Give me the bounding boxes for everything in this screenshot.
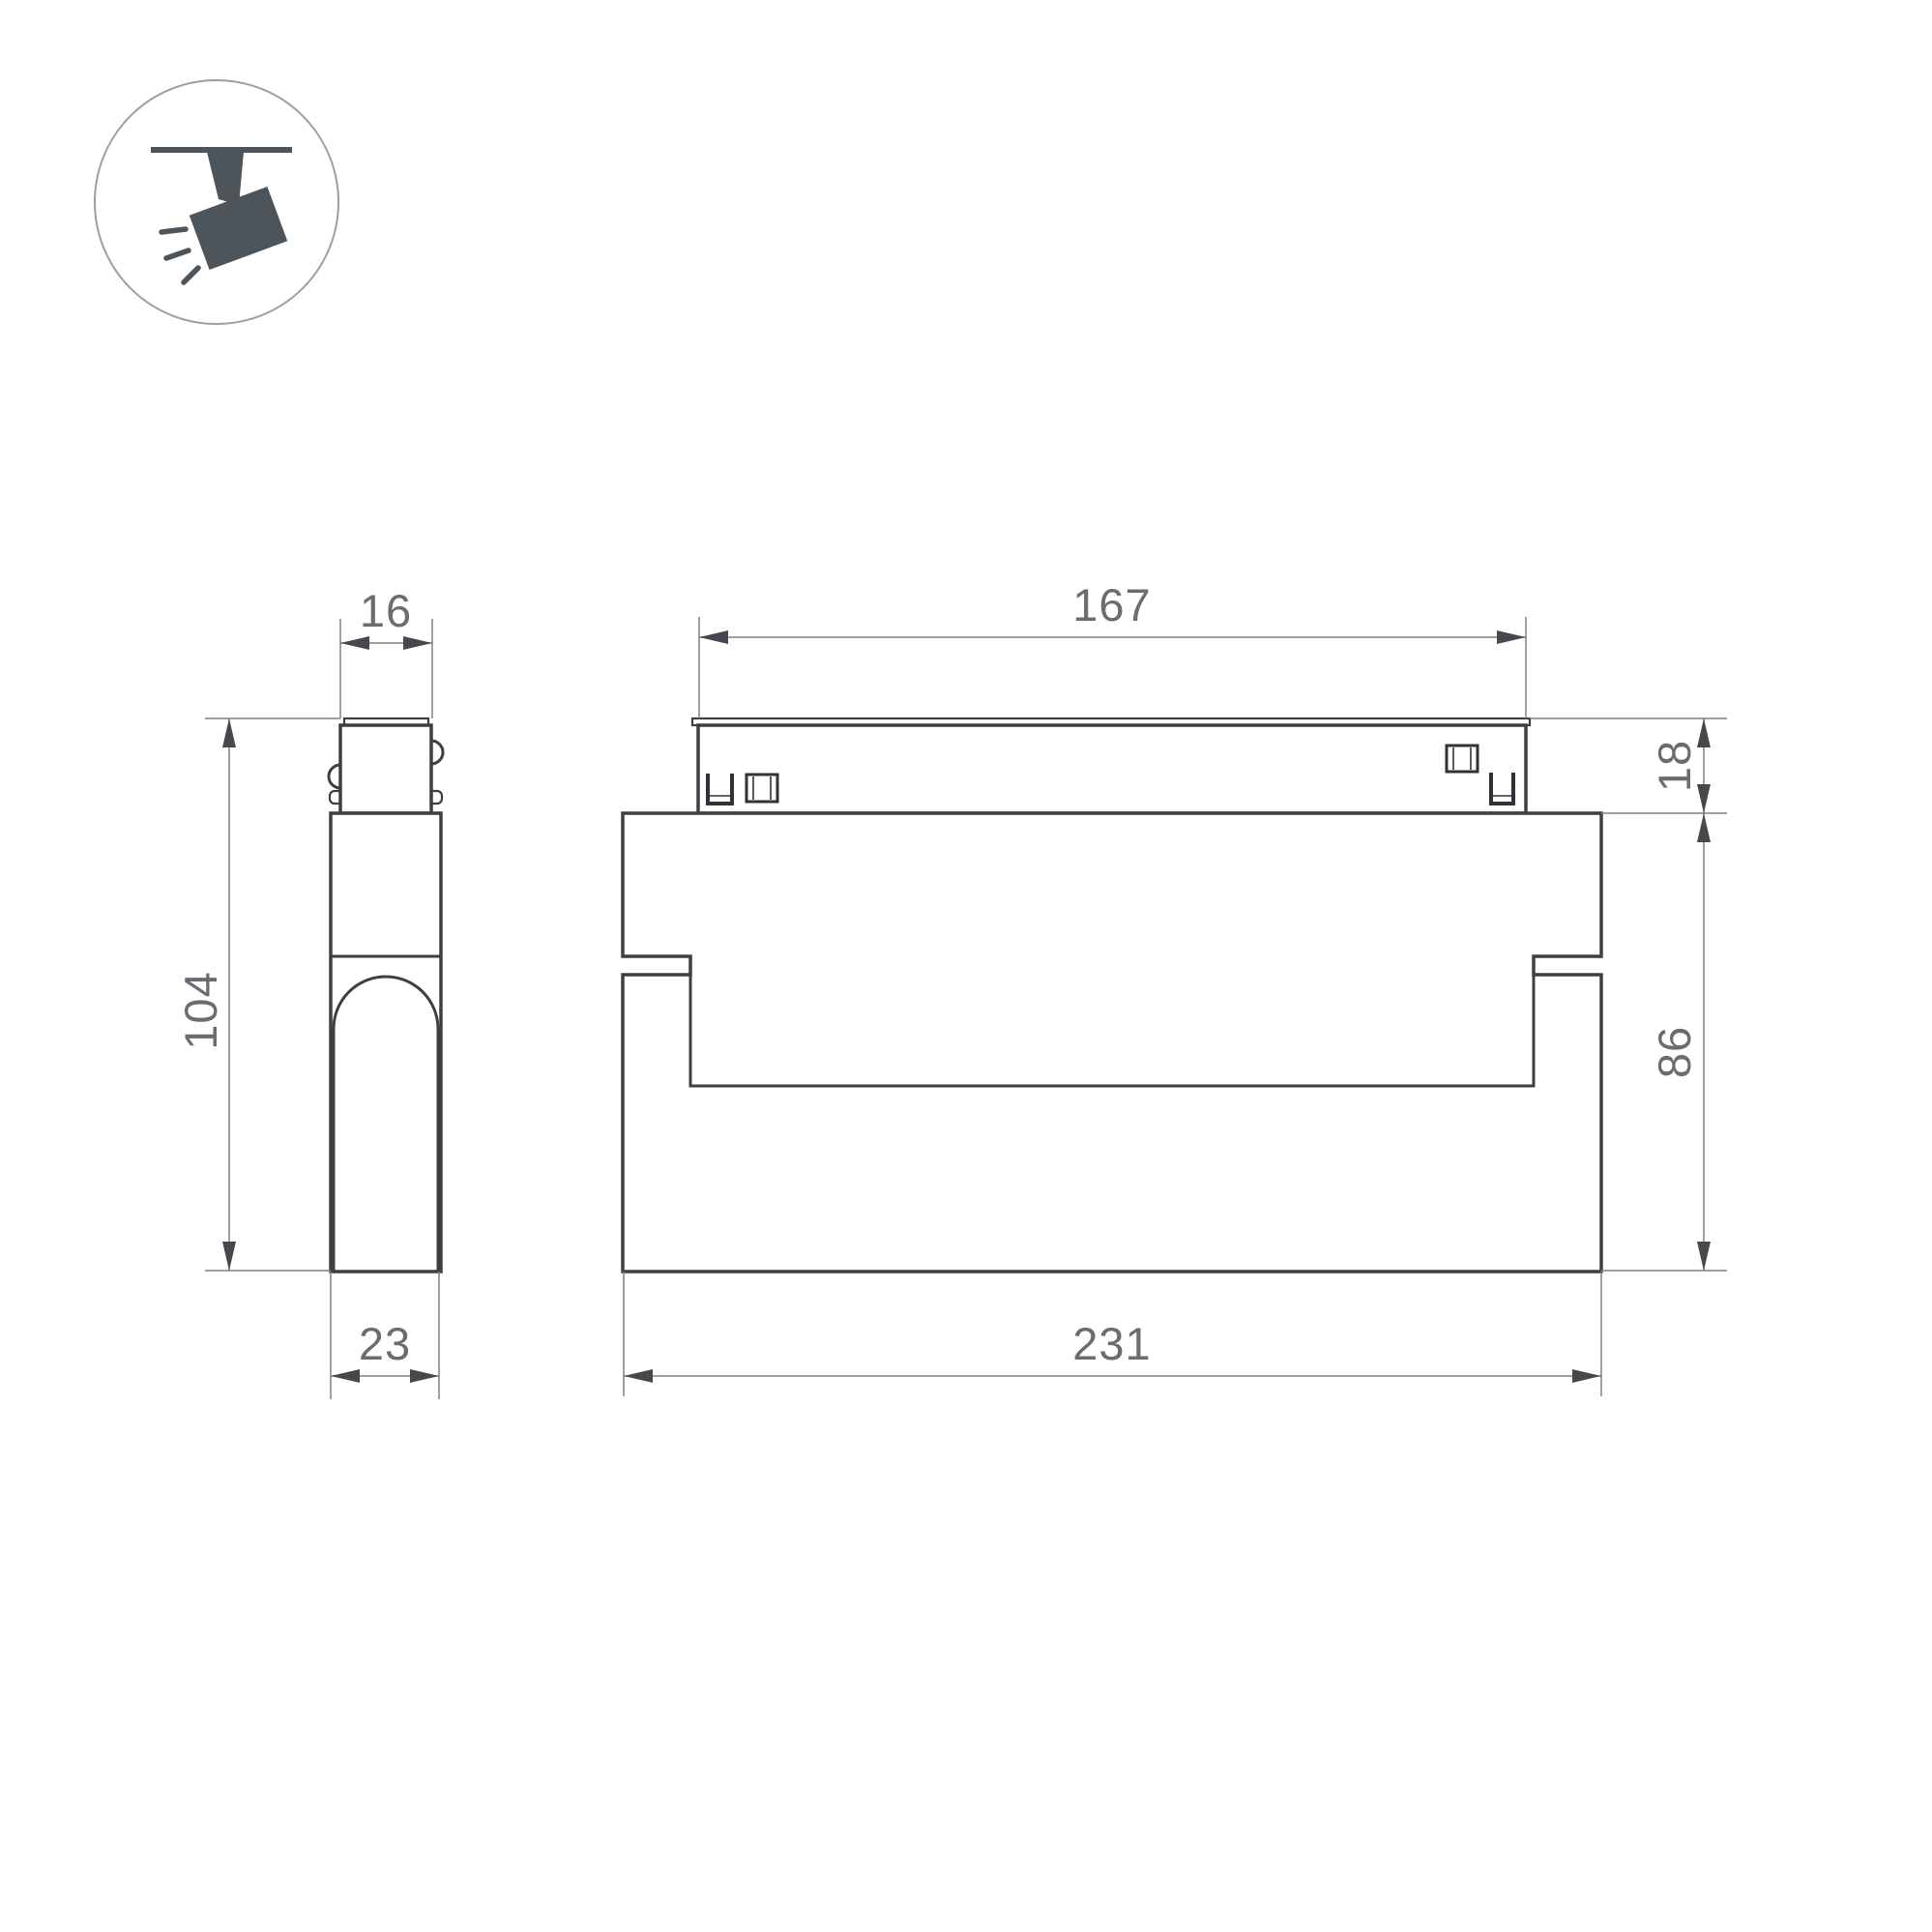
arrowhead [1697,1242,1711,1271]
dim-label-86: 86 [1649,1026,1700,1078]
arrowhead [340,636,369,650]
dim-label-104: 104 [175,971,226,1049]
side-body [331,813,441,1272]
dim-label-16: 16 [360,585,412,636]
dim-label-231: 231 [1072,1318,1151,1369]
icon-circle [95,80,338,324]
drawing-canvas: 16 104 23 [0,0,1932,1932]
track-spotlight-icon [95,80,338,324]
front-view [623,718,1601,1272]
front-adapter-strip [698,725,1526,813]
dim-front-body-height: 86 [1601,813,1727,1271]
arrowhead [1697,813,1711,842]
arrowhead [410,1369,439,1383]
dim-front-adapter-height: 18 [1530,718,1727,813]
arrowhead [1572,1369,1601,1383]
dim-side-adapter-width: 16 [340,585,432,718]
icon-light-ray [161,229,186,232]
dim-side-total-height: 104 [175,718,340,1271]
dim-label-23: 23 [359,1318,411,1369]
side-adapter [340,725,431,813]
arrowhead [331,1369,360,1383]
dimension-drawing: 16 104 23 [0,0,1932,1932]
arrowhead [699,630,728,644]
arrowhead [222,718,236,747]
dim-front-adapter-length: 167 [699,579,1526,718]
arrowhead [624,1369,653,1383]
arrowhead [403,636,432,650]
dim-label-18: 18 [1649,740,1700,792]
arrowhead [222,1242,236,1271]
arrowhead [1497,630,1526,644]
side-right-clip-bump [431,741,443,764]
side-left-clip-bump [329,765,340,788]
dim-front-body-length: 231 [624,1272,1601,1396]
side-view [329,718,443,1272]
dim-side-body-depth: 23 [331,1272,439,1399]
dim-label-167: 167 [1072,579,1151,630]
front-body-outline [623,813,1601,1272]
